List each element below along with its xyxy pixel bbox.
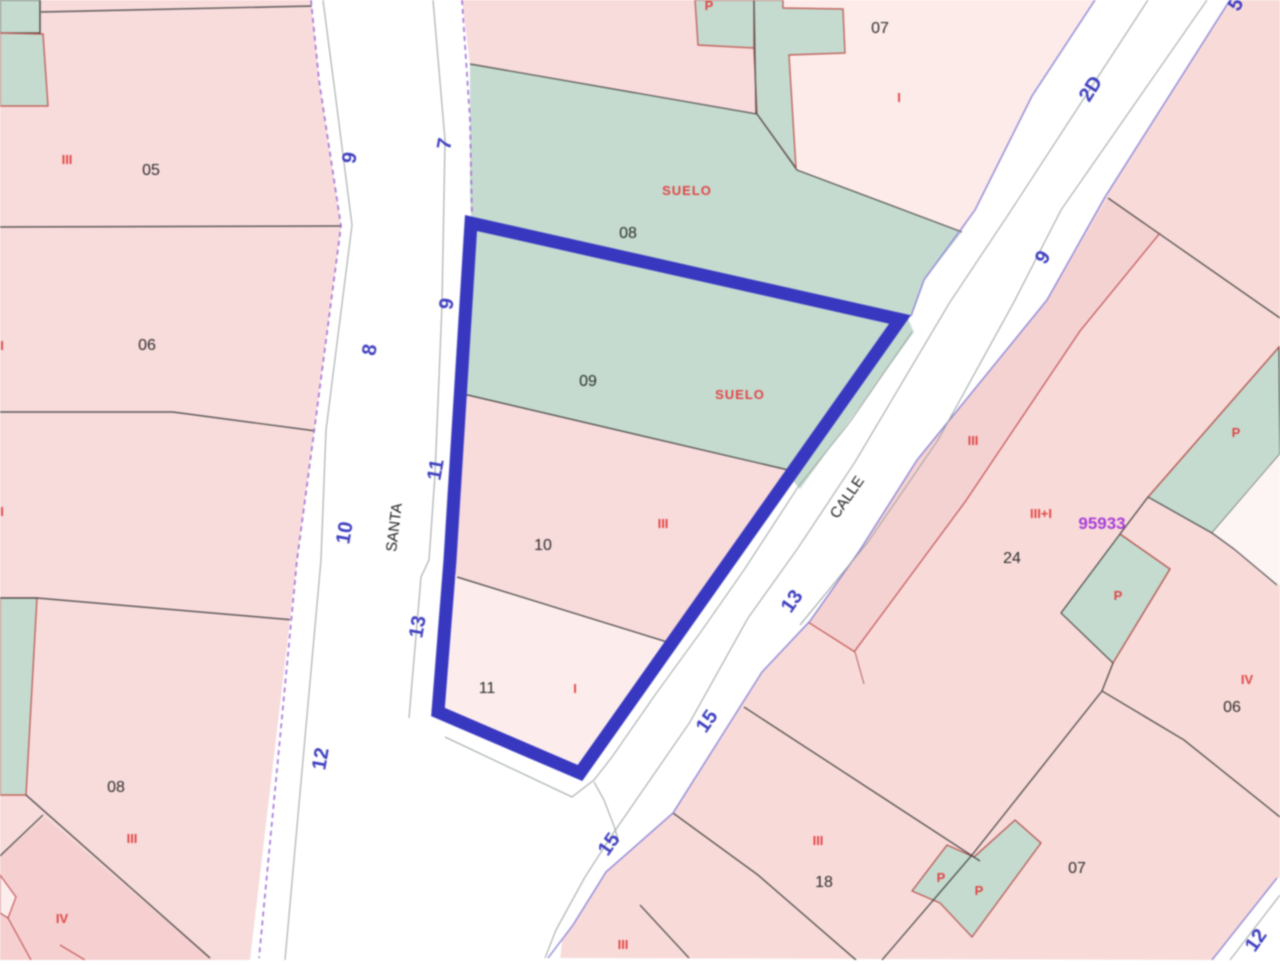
svg-text:06: 06 [1223, 699, 1241, 716]
svg-text:18: 18 [815, 874, 833, 891]
svg-text:I: I [897, 90, 901, 105]
svg-text:13: 13 [405, 614, 431, 640]
svg-text:P: P [975, 883, 984, 898]
svg-text:06: 06 [138, 337, 156, 354]
svg-text:IV: IV [1241, 672, 1254, 687]
svg-text:09: 09 [579, 373, 597, 390]
svg-text:P: P [705, 0, 714, 13]
svg-text:III: III [62, 152, 73, 167]
svg-text:I: I [0, 338, 4, 353]
svg-text:95933: 95933 [1078, 514, 1125, 533]
svg-text:IV: IV [56, 911, 69, 926]
svg-text:III: III [813, 833, 824, 848]
svg-text:P: P [1114, 588, 1123, 603]
svg-text:05: 05 [142, 162, 160, 179]
svg-text:07: 07 [871, 20, 889, 37]
svg-text:I: I [573, 681, 577, 696]
svg-text:III: III [127, 831, 138, 846]
svg-text:24: 24 [1003, 550, 1021, 567]
svg-text:P: P [937, 870, 946, 885]
svg-text:P: P [1232, 425, 1241, 440]
svg-text:SUELO: SUELO [715, 387, 765, 402]
svg-text:III: III [658, 516, 669, 531]
svg-text:07: 07 [1068, 860, 1086, 877]
svg-text:10: 10 [534, 537, 552, 554]
svg-text:III: III [968, 433, 979, 448]
svg-text:SUELO: SUELO [662, 183, 712, 198]
svg-text:I: I [0, 504, 4, 519]
svg-text:11: 11 [479, 680, 496, 697]
svg-text:08: 08 [619, 225, 637, 242]
svg-text:III+I: III+I [1030, 506, 1052, 521]
svg-text:11: 11 [423, 457, 448, 482]
svg-text:10: 10 [332, 520, 358, 546]
svg-text:III: III [618, 937, 629, 952]
svg-text:08: 08 [107, 779, 125, 796]
svg-text:12: 12 [308, 746, 334, 772]
